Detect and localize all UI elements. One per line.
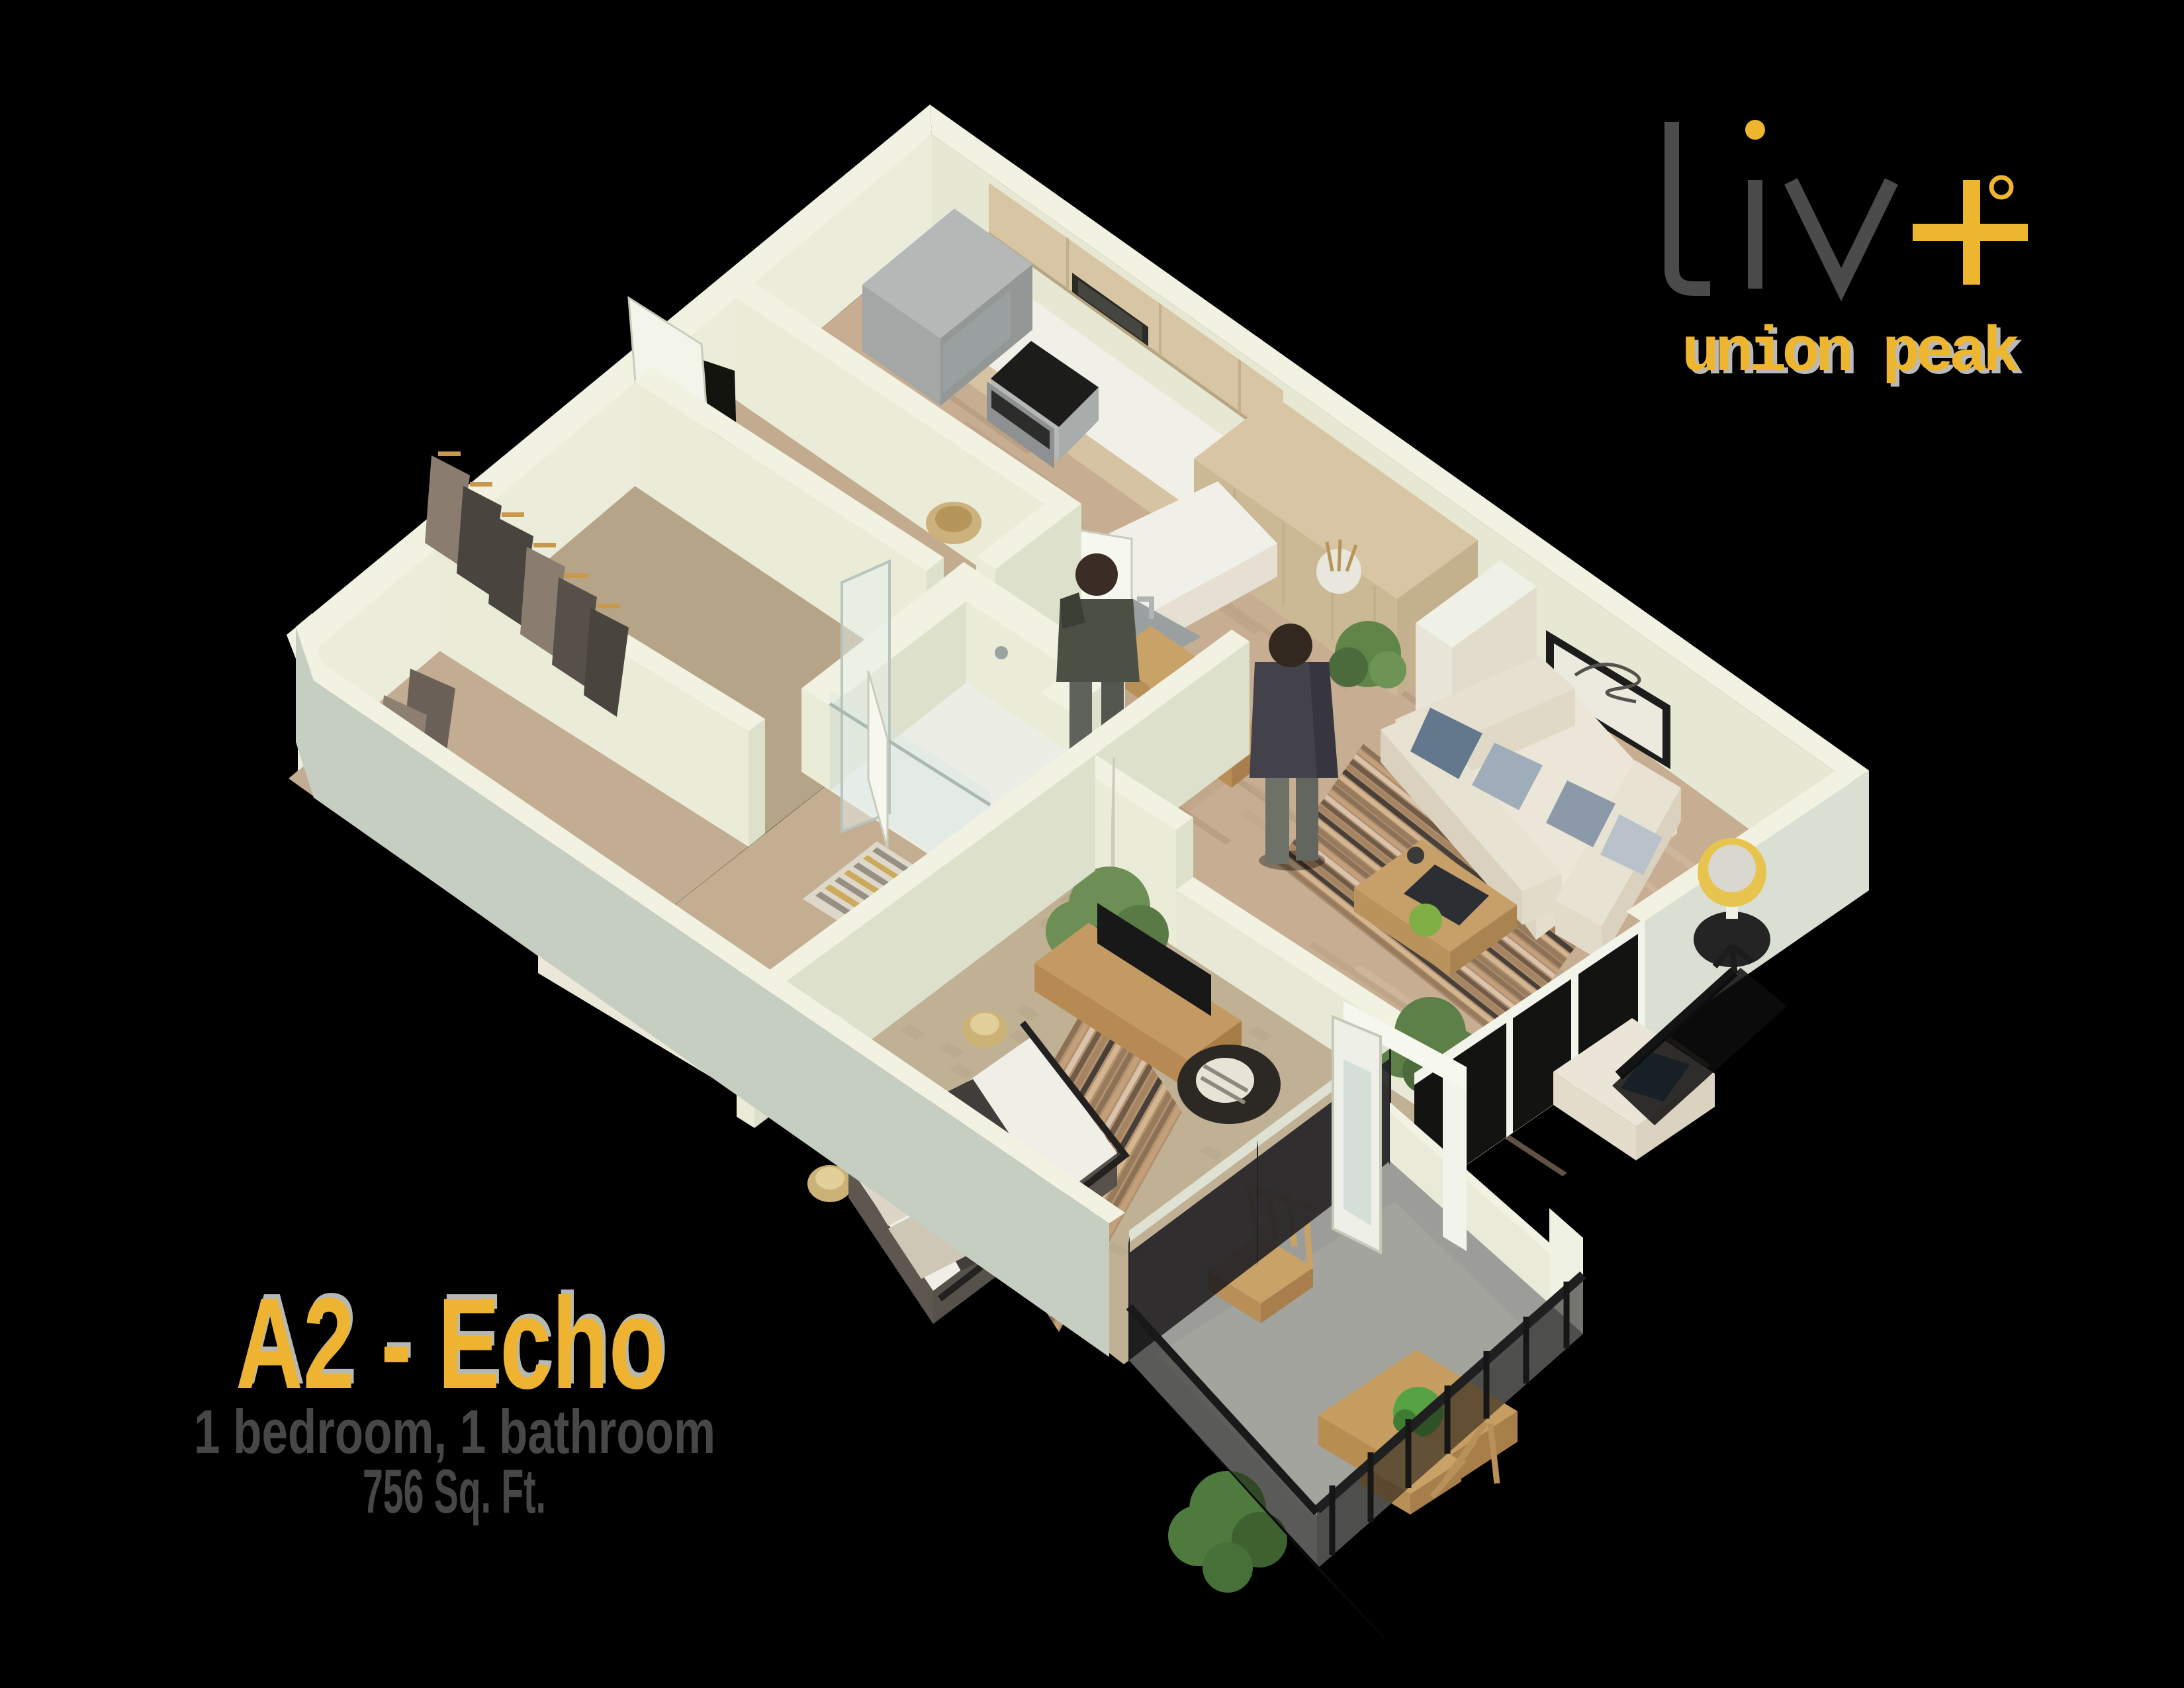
svg-text:union peak: union peak (1682, 317, 2021, 389)
svg-text:756 Sq. Ft.: 756 Sq. Ft. (363, 1456, 546, 1526)
svg-text:A2 - Echo: A2 - Echo (236, 1271, 666, 1416)
